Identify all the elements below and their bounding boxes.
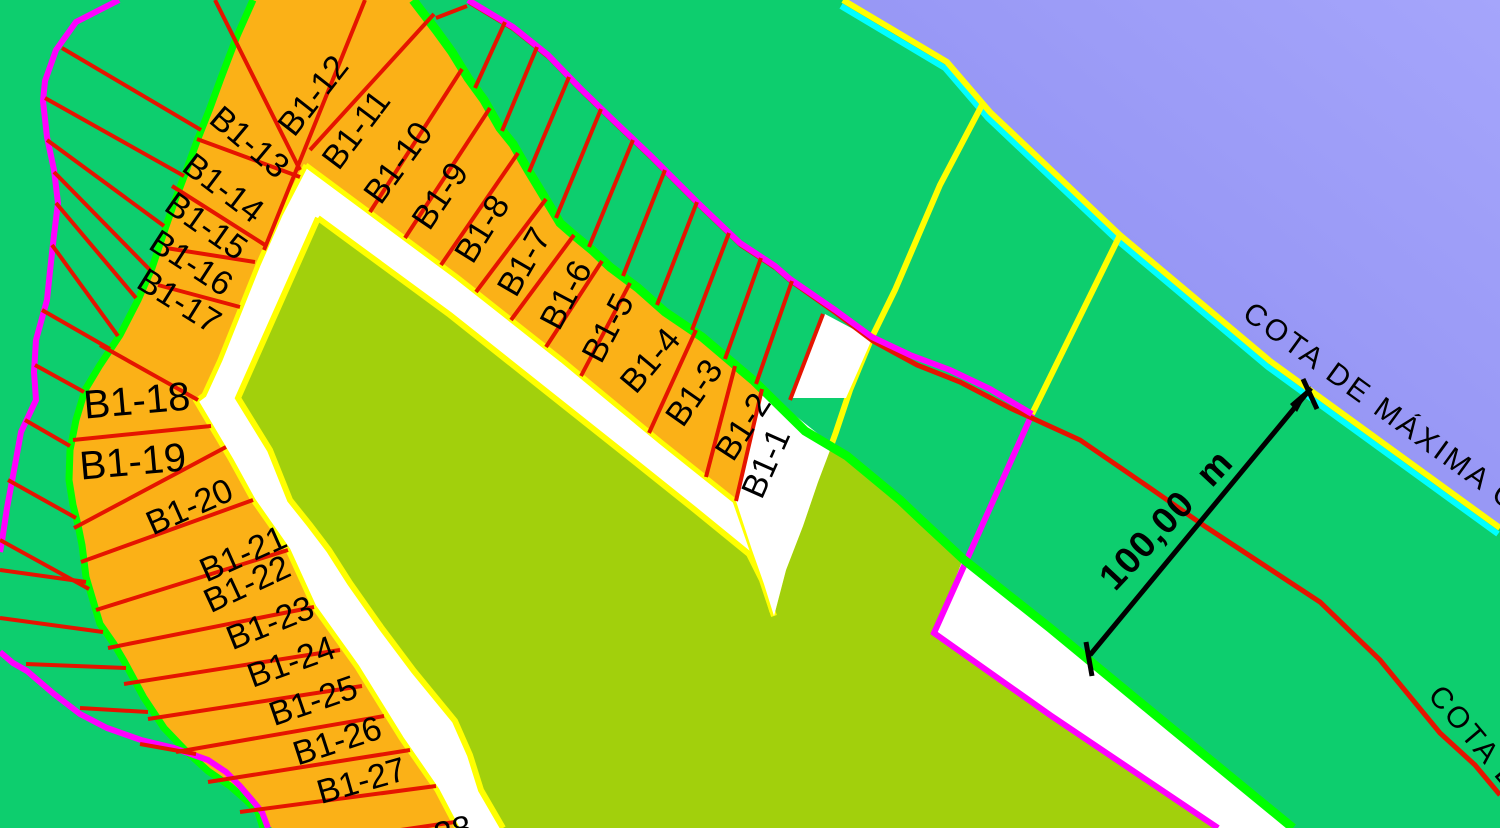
svg-text:B1-18: B1-18 [82, 374, 192, 427]
svg-text:B1-19: B1-19 [78, 435, 188, 488]
